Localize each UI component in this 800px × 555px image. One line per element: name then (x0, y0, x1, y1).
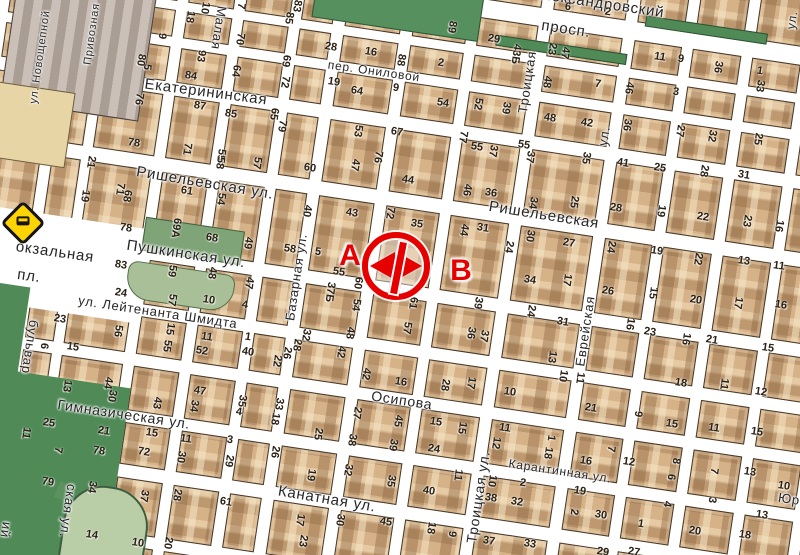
house-number: 24 (427, 442, 441, 456)
house-number: 15 (145, 426, 159, 440)
street-label: пер. Ониловой (327, 58, 421, 85)
house-number: 28 (609, 201, 623, 215)
house-number: 15 (665, 417, 679, 431)
house-number: 17 (293, 513, 307, 527)
house-number: 24 (524, 304, 538, 318)
house-number: 15 (429, 415, 443, 429)
house-number: 49 (241, 236, 255, 250)
house-number: 60 (351, 276, 365, 290)
house-number: 55 (160, 339, 174, 353)
house-number: 33 (272, 397, 286, 411)
house-number: 64 (229, 64, 243, 78)
house-number: 40 (300, 204, 314, 218)
house-number: 26 (268, 445, 282, 459)
house-number: 61 (406, 296, 420, 310)
house-number: 19 (304, 468, 318, 482)
house-number: 12 (489, 436, 503, 450)
house-number: 37 (486, 144, 500, 158)
street-label: Канатная ул. (277, 482, 377, 515)
house-number: 15 (761, 341, 775, 355)
house-number: 25 (42, 416, 56, 430)
house-number: 2 (437, 57, 445, 70)
house-number: 18 (541, 446, 555, 460)
house-number: 23 (53, 312, 67, 326)
house-number: 67 (390, 125, 404, 139)
house-number: 43 (150, 396, 164, 410)
house-number: 39 (471, 296, 485, 310)
house-number: 10 (131, 536, 145, 550)
house-number: 12 (754, 385, 768, 399)
house-number: 23 (296, 534, 310, 548)
house-number: 25 (311, 427, 325, 441)
house-number: 79 (275, 119, 289, 133)
street-label: пл. (16, 266, 42, 286)
house-number: 7 (605, 445, 618, 453)
house-number: 2 (568, 508, 581, 516)
house-number: 37Б (323, 281, 338, 303)
house-number: 38 (484, 491, 498, 505)
street-label: Осипова (370, 388, 433, 413)
street-label: ул. Новощепной (28, 10, 53, 105)
street-label: Ришельевская ул. (135, 163, 275, 203)
house-number: 52 (195, 344, 209, 358)
house-number: 54 (214, 192, 228, 206)
house-number: 16 (774, 298, 788, 312)
street-label: Малая (208, 5, 229, 51)
house-number: 10 (198, 1, 212, 15)
house-number: 54 (436, 96, 450, 110)
house-number: 17 (731, 296, 745, 310)
house-number: 47 (242, 276, 256, 290)
house-number: 69А (169, 217, 184, 239)
house-number: 72 (383, 206, 397, 220)
street-label: ул. (784, 10, 800, 30)
street-label: ий (0, 521, 15, 539)
house-number: 28 (697, 164, 711, 178)
house-number: 21 (97, 424, 111, 438)
house-number: 72 (137, 445, 151, 459)
house-number: 35 (410, 217, 424, 231)
house-number: 80 (134, 53, 148, 67)
house-number: 42 (334, 345, 348, 359)
house-number: 18 (268, 412, 282, 426)
house-number: 85 (282, 11, 296, 25)
house-number: 28 (324, 40, 338, 54)
route-marker-ring[interactable] (362, 232, 430, 300)
house-number: 23 (545, 42, 559, 56)
house-number: 24 (114, 286, 128, 300)
house-number: 16 (772, 219, 786, 233)
house-number: 69 (279, 54, 293, 68)
house-number: 45 (391, 414, 405, 428)
house-number: 17 (464, 376, 478, 390)
house-number: 4 (235, 406, 243, 419)
house-number: 30 (105, 389, 119, 403)
house-number: 18 (183, 10, 197, 24)
house-number: 85 (224, 107, 238, 121)
house-number: 78 (119, 221, 133, 235)
house-number: 11 (451, 468, 465, 481)
house-number: 15 (163, 322, 177, 336)
house-number: 64 (350, 84, 364, 98)
house-number: 42 (359, 367, 373, 381)
house-number: 41 (616, 156, 630, 170)
house-number: 10 (202, 293, 216, 307)
house-number: 57 (165, 293, 179, 307)
house-number: 36 (464, 326, 478, 340)
house-number: 18 (674, 376, 688, 390)
house-number: 15 (646, 286, 660, 300)
house-number: 33 (523, 537, 537, 551)
house-number: 11 (653, 50, 666, 64)
house-number: 11 (498, 421, 511, 435)
house-number: 43 (345, 206, 359, 220)
house-number: 1 (244, 331, 252, 344)
house-number: 3 (226, 434, 234, 447)
house-number: 37 (137, 489, 151, 503)
house-number: 48 (343, 326, 357, 340)
house-number: 4 (661, 500, 674, 508)
house-number: 55 (470, 140, 484, 154)
house-number: 77 (456, 130, 470, 144)
house-number: 35 (384, 474, 398, 488)
house-number: 9 (446, 530, 459, 538)
house-number: 34 (187, 399, 201, 413)
house-number: 78 (127, 136, 141, 150)
house-number: 18 (738, 528, 752, 542)
house-number: 45 (379, 515, 393, 529)
house-number: 25 (751, 132, 765, 146)
house-number: 59 (165, 264, 179, 278)
house-number: 42 (580, 116, 594, 130)
house-number: 2 (604, 6, 612, 19)
house-number: 10 (503, 385, 517, 399)
house-number: 36 (620, 118, 634, 132)
house-number: 60 (303, 161, 317, 175)
house-number: 34 (523, 273, 537, 287)
house-number: 71 (180, 142, 194, 156)
house-number: 47 (193, 384, 207, 398)
house-number: 21 (584, 401, 598, 415)
house-number: 7 (594, 78, 602, 91)
house-number: 47 (348, 158, 362, 172)
street-label: Ришельевская (488, 198, 601, 232)
house-number: 32 (299, 328, 313, 342)
house-number: 10 (777, 479, 791, 493)
house-number: 61 (219, 495, 233, 509)
street-label: Гимназическая ул. (57, 396, 192, 432)
house-number: 48 (540, 75, 554, 89)
house-number: 12 (622, 455, 636, 469)
vehicle-glyph (17, 216, 30, 225)
route-point-a-label: А (339, 239, 361, 273)
house-number: 31 (737, 168, 751, 182)
house-number: 89 (445, 20, 459, 34)
house-number: 70 (233, 32, 247, 46)
house-number: 19 (573, 484, 587, 498)
house-number: 40 (422, 484, 436, 498)
house-number: 31 (476, 221, 490, 235)
house-number: 16 (394, 375, 408, 389)
house-number: 16 (679, 332, 693, 346)
house-number: 34 (526, 196, 540, 210)
house-number: 46 (622, 81, 636, 95)
house-number: 23 (643, 325, 657, 339)
house-number: 6 (564, 1, 572, 14)
house-number: 21 (84, 155, 98, 169)
house-number: 1 (756, 65, 764, 78)
route-point-b-label: В (450, 254, 472, 288)
house-number: 11 (707, 421, 720, 435)
house-number: 9 (156, 32, 169, 40)
house-number: 11 (179, 432, 192, 446)
house-number: 11 (19, 426, 33, 439)
house-number: 13 (545, 350, 559, 364)
house-number: 14 (85, 528, 99, 542)
house-number: 9 (632, 410, 645, 418)
house-number: 61 (180, 184, 194, 198)
house-number: 27 (562, 236, 576, 250)
house-number: 76 (132, 92, 146, 106)
house-number: 76 (371, 150, 385, 164)
house-number: 53 (351, 124, 365, 138)
house-number: 6 (38, 342, 51, 350)
house-number: 57 (250, 156, 264, 170)
house-number: 17 (560, 273, 574, 287)
city-map[interactable]: Александровскийпросп.пер. ОниловойЕкатер… (0, 0, 800, 555)
house-number: 15 (66, 340, 80, 354)
house-number: 11 (717, 377, 731, 390)
house-number: 19 (650, 244, 664, 258)
house-number: 57 (400, 321, 414, 335)
house-number: 31 (556, 315, 570, 329)
house-number: 37 (477, 329, 491, 343)
house-number: 22 (691, 252, 705, 266)
house-number: 39 (386, 438, 400, 452)
house-number: 25 (567, 195, 581, 209)
house-number: 15 (455, 421, 469, 435)
house-number: 43Б (509, 43, 524, 65)
street-label: окзальная (15, 238, 95, 266)
house-number: 56 (111, 324, 125, 338)
house-number: 26 (601, 284, 615, 298)
house-number: 71 (113, 182, 127, 196)
house-number: 28 (438, 378, 452, 392)
house-number: 48 (543, 111, 557, 125)
house-number: 30 (523, 229, 537, 243)
house-number: 13 (743, 465, 757, 479)
house-number: 29 (222, 454, 236, 468)
house-number: 19 (654, 204, 668, 218)
house-number: 29 (596, 545, 610, 555)
house-number: 54 (349, 298, 363, 312)
house-number: 32 (341, 463, 355, 477)
house-number: 83 (290, 0, 304, 13)
house-number: 32 (705, 129, 719, 143)
house-number: 39 (499, 101, 513, 115)
house-number: 36 (484, 186, 498, 200)
house-number: 16 (623, 317, 637, 331)
house-number: 27 (673, 124, 687, 138)
house-number: 19 (78, 189, 92, 203)
house-number: 13 (737, 254, 751, 268)
house-number: 79 (41, 475, 55, 489)
house-number: 20 (688, 524, 702, 538)
house-number: 19 (327, 75, 341, 89)
house-number: 36 (711, 60, 725, 74)
street-label: Пушкинская ул. (125, 237, 246, 272)
house-number: 29 (487, 32, 501, 46)
house-number: 16 (579, 454, 593, 468)
house-number: 28 (170, 488, 184, 502)
house-number: 10 (485, 474, 499, 488)
house-number: 1 (545, 434, 558, 442)
house-number: 23 (740, 214, 754, 228)
house-number: 58 (283, 242, 297, 256)
house-number: 5 (314, 246, 322, 259)
street-label: просп. (540, 17, 591, 41)
house-number: 84 (184, 69, 198, 83)
house-number: 33 (753, 79, 767, 93)
house-number: 87 (193, 99, 207, 113)
house-number: 6 (665, 473, 678, 481)
house-number: 8 (670, 457, 683, 465)
house-number: 38 (345, 433, 359, 447)
house-number: 11 (573, 371, 587, 384)
house-number: 37 (482, 534, 496, 548)
house-number: 4 (241, 299, 249, 312)
house-number: 30 (333, 513, 347, 527)
house-number: 20 (161, 536, 175, 550)
house-number: 46 (460, 183, 474, 197)
house-number: 15 (750, 425, 764, 439)
house-number: 27 (350, 406, 364, 420)
house-number: 3 (672, 86, 680, 99)
house-number: 83 (114, 258, 128, 272)
house-number: 10 (556, 369, 570, 383)
house-number: 11 (200, 330, 213, 344)
house-number: 35 (579, 151, 593, 165)
house-number: 13 (60, 379, 74, 393)
house-number: 7 (235, 2, 248, 10)
house-number: 78 (92, 444, 106, 458)
house-number: 9 (677, 53, 685, 66)
house-number: 24 (604, 240, 618, 254)
house-number: 30 (594, 508, 608, 522)
street-label: Еврейская (572, 295, 597, 368)
house-number: 58 (213, 156, 227, 170)
house-number: 25 (653, 161, 667, 175)
house-number: 37 (523, 150, 537, 164)
house-number: 16 (364, 45, 378, 59)
house-number: 47 (558, 46, 572, 60)
house-number: 11 (772, 259, 785, 273)
street-label: ская ул. (57, 483, 80, 539)
house-number: 22 (696, 210, 710, 224)
house-number: 21 (705, 333, 719, 347)
house-number: 88 (394, 53, 408, 67)
house-number: 34 (85, 480, 99, 494)
house-number: 52 (471, 97, 485, 111)
house-number: 24 (502, 240, 516, 254)
house-number: 44 (101, 376, 115, 390)
house-number: 44 (401, 173, 415, 187)
house-number: 68 (205, 231, 219, 245)
house-number: 72 (278, 75, 292, 89)
house-number: 1 (637, 518, 645, 531)
house-number: 13 (755, 508, 769, 522)
house-number: 2 (519, 477, 527, 490)
house-number: 27 (627, 545, 641, 555)
house-number: 32 (510, 495, 524, 509)
house-number: 40 (241, 345, 255, 359)
street-label: ул. (595, 125, 613, 147)
house-number: 3 (706, 496, 719, 504)
house-number: 7 (708, 467, 721, 475)
house-number: 48 (205, 266, 219, 280)
house-number: 9 (392, 82, 400, 95)
house-number: 7 (52, 446, 65, 454)
house-number: 20 (689, 293, 703, 307)
house-number: 30 (174, 450, 188, 464)
house-number: 44 (457, 223, 471, 237)
street-label: Привозная (82, 2, 103, 65)
house-number: 93 (194, 49, 208, 63)
house-number: 18 (424, 521, 438, 535)
